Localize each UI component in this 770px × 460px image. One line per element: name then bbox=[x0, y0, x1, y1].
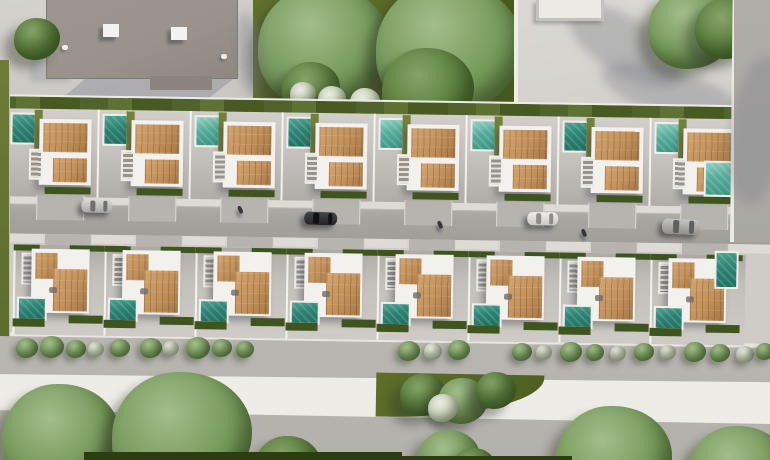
rooftop-unit bbox=[62, 45, 68, 50]
patio-furniture bbox=[49, 287, 57, 293]
car bbox=[527, 212, 558, 225]
hedge bbox=[104, 320, 136, 328]
rooftop-unit bbox=[221, 54, 227, 59]
timber-roof-deck bbox=[227, 126, 271, 156]
timber-roof-deck bbox=[135, 124, 179, 154]
rooftop-vent bbox=[171, 27, 187, 40]
stairs bbox=[673, 158, 687, 189]
villa-unit-top-row bbox=[556, 116, 649, 205]
stairs bbox=[121, 150, 135, 181]
stairs bbox=[213, 151, 227, 182]
hedge bbox=[504, 194, 550, 202]
driveway bbox=[404, 200, 452, 226]
hedge bbox=[468, 325, 500, 333]
villa-unit-bottom-row bbox=[376, 250, 470, 341]
hedge bbox=[342, 319, 376, 328]
timber-roof-deck bbox=[326, 273, 361, 315]
driveway bbox=[44, 234, 92, 246]
car bbox=[304, 211, 337, 225]
hedge bbox=[412, 192, 458, 200]
villa-roof bbox=[315, 123, 368, 190]
hedge bbox=[558, 326, 590, 334]
patio-furniture bbox=[504, 294, 512, 300]
hedge bbox=[229, 190, 275, 198]
villa-roof bbox=[39, 119, 92, 186]
villa-unit-top-row bbox=[280, 112, 373, 201]
patio-furniture bbox=[686, 296, 694, 302]
patio-furniture bbox=[322, 291, 330, 297]
hedge bbox=[320, 191, 366, 199]
hedge bbox=[69, 315, 103, 324]
plunge-pool bbox=[194, 115, 220, 147]
villa-unit-top-row bbox=[4, 108, 97, 197]
hedge bbox=[137, 188, 183, 196]
villa-unit-top-row bbox=[464, 115, 557, 204]
villa-roof bbox=[591, 127, 644, 194]
plunge-pool bbox=[108, 298, 138, 322]
rooftop-vent bbox=[103, 24, 119, 37]
villa-unit-top-row bbox=[188, 111, 281, 200]
villa-unit-top-row bbox=[96, 110, 189, 199]
car-windshield bbox=[673, 220, 680, 233]
stairs bbox=[489, 155, 503, 186]
timber-roof-deck bbox=[43, 123, 87, 153]
car-windshield bbox=[313, 213, 319, 224]
car-windshield bbox=[536, 213, 541, 224]
timber-roof-deck bbox=[411, 128, 455, 158]
plunge-pool bbox=[199, 299, 229, 323]
villa-roof bbox=[223, 121, 276, 188]
villa-roof bbox=[499, 126, 552, 193]
villa-unit-bottom-row bbox=[467, 251, 561, 342]
hedge bbox=[13, 318, 45, 326]
development-strip bbox=[0, 94, 770, 358]
driveway bbox=[590, 242, 638, 254]
timber-roof-annex bbox=[53, 158, 87, 183]
timber-roof-deck bbox=[417, 274, 452, 316]
plunge-pool bbox=[562, 121, 588, 153]
plunge-pool bbox=[654, 306, 684, 330]
villa-unit-top-row bbox=[372, 114, 465, 203]
hedge bbox=[160, 317, 194, 326]
hedge bbox=[45, 187, 91, 195]
villa-unit-bottom-row bbox=[103, 246, 197, 337]
driveway bbox=[408, 239, 456, 251]
timber-roof-deck bbox=[319, 127, 363, 157]
hedge bbox=[251, 318, 285, 327]
timber-roof-annex bbox=[329, 162, 363, 187]
driveway bbox=[36, 195, 84, 221]
timber-roof-deck bbox=[144, 270, 179, 312]
timber-roof-deck bbox=[687, 132, 731, 162]
hedge bbox=[688, 196, 734, 204]
driveway bbox=[128, 196, 176, 222]
car-rear-window bbox=[689, 221, 695, 234]
patio-furniture bbox=[140, 288, 148, 294]
aerial-site-render bbox=[0, 0, 770, 460]
villa-unit-bottom-row bbox=[558, 252, 652, 343]
timber-roof-deck bbox=[508, 276, 543, 318]
hedge bbox=[649, 328, 681, 336]
villa-unit-bottom-row bbox=[285, 248, 379, 339]
plunge-pool bbox=[472, 303, 502, 327]
timber-roof-deck bbox=[599, 277, 634, 319]
driveway bbox=[220, 197, 268, 223]
hedge-strip-bottom bbox=[402, 456, 572, 460]
timber-roof-annex bbox=[421, 163, 455, 188]
end-unit-pool bbox=[714, 251, 739, 289]
plunge-pool bbox=[381, 302, 411, 326]
building-lower-wing bbox=[150, 76, 212, 90]
plunge-pool bbox=[654, 122, 680, 154]
car-rear-window bbox=[103, 201, 107, 212]
timber-roof-deck bbox=[235, 272, 270, 314]
plunge-pool bbox=[286, 116, 312, 148]
timber-roof-annex bbox=[605, 166, 639, 191]
hedge bbox=[433, 321, 467, 330]
timber-roof-deck bbox=[595, 131, 639, 161]
timber-roof-annex bbox=[145, 159, 179, 184]
car-windshield bbox=[90, 201, 95, 212]
hedge bbox=[596, 195, 642, 203]
hedge bbox=[706, 325, 740, 334]
plunge-pool bbox=[378, 118, 404, 150]
timber-roof-annex bbox=[237, 161, 271, 186]
car-rear-window bbox=[328, 213, 332, 224]
villa-unit-bottom-row bbox=[12, 244, 106, 335]
shrub bbox=[756, 343, 770, 360]
villa-unit-bottom-row bbox=[194, 247, 288, 338]
office-building-roof bbox=[46, 0, 238, 79]
timber-roof-annex bbox=[513, 165, 547, 190]
hedge bbox=[195, 321, 227, 329]
timber-roof-deck bbox=[53, 269, 88, 311]
plunge-pool bbox=[470, 119, 496, 151]
patio-furniture bbox=[595, 295, 603, 301]
driveway bbox=[499, 241, 547, 253]
hedge-strip-bottom bbox=[84, 452, 402, 460]
stairs bbox=[581, 157, 595, 188]
plunge-pool bbox=[102, 114, 128, 146]
patio-furniture bbox=[231, 290, 239, 296]
hedge bbox=[524, 322, 558, 331]
hedge bbox=[377, 324, 409, 332]
stairs bbox=[397, 154, 411, 185]
driveway bbox=[317, 238, 365, 250]
driveway bbox=[588, 203, 636, 229]
plunge-pool bbox=[17, 296, 47, 320]
plunge-pool bbox=[290, 301, 320, 325]
hedge bbox=[286, 322, 318, 330]
plunge-pool bbox=[10, 112, 36, 144]
stairs bbox=[29, 149, 43, 180]
villa-roof bbox=[407, 124, 460, 191]
plunge-pool bbox=[563, 305, 593, 329]
car bbox=[662, 218, 701, 235]
hedge bbox=[615, 323, 649, 332]
timber-roof-deck bbox=[503, 130, 547, 160]
verge-left bbox=[0, 60, 10, 346]
small-roof-structure bbox=[536, 0, 604, 21]
car-rear-window bbox=[549, 213, 553, 224]
villa-roof bbox=[131, 120, 184, 187]
driveway bbox=[135, 235, 183, 247]
patio-furniture bbox=[413, 292, 421, 298]
stairs bbox=[305, 153, 319, 184]
driveway bbox=[226, 237, 274, 249]
car bbox=[81, 199, 112, 212]
